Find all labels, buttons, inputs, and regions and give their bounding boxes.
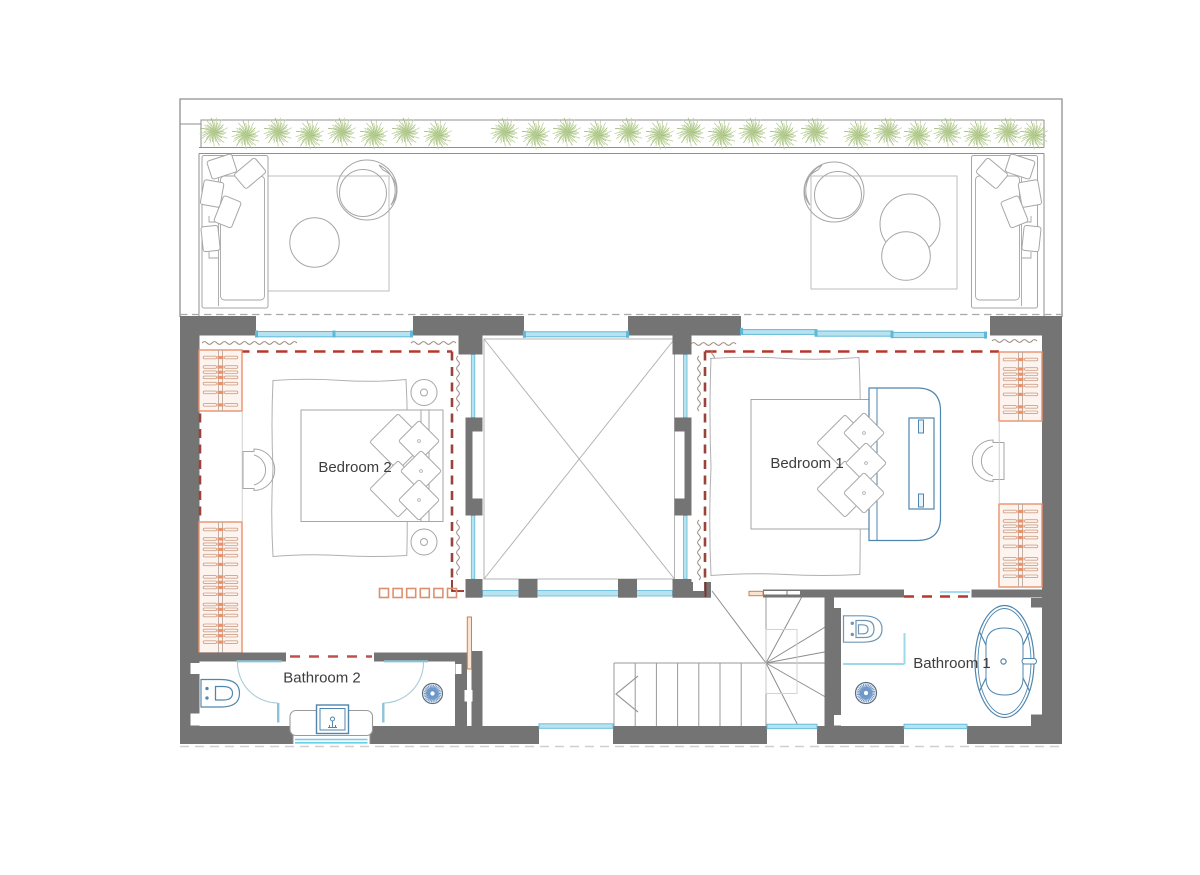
svg-text:Bathroom 1: Bathroom 1 bbox=[913, 655, 991, 672]
svg-text:Bathroom 2: Bathroom 2 bbox=[283, 670, 361, 687]
svg-text:Bedroom 2: Bedroom 2 bbox=[318, 459, 391, 476]
svg-text:Bedroom 1: Bedroom 1 bbox=[770, 455, 843, 472]
